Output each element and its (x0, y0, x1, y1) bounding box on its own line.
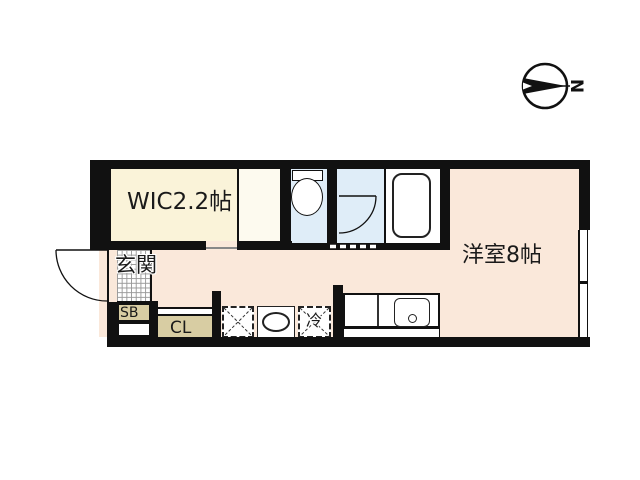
wall-wic-bottom-left (90, 241, 206, 250)
wall-bath-right (440, 160, 450, 250)
entrance-tile-bottom-line (117, 301, 151, 303)
window-line-outer (587, 230, 589, 337)
wic-opening-threshold (206, 247, 237, 249)
window-line-inner (578, 230, 580, 337)
wall-toilet-right (327, 169, 337, 243)
wall-sb-cl-divider (151, 301, 158, 337)
wic-label: WIC2.2帖 (127, 191, 232, 214)
washing-machine-space (222, 306, 254, 338)
window-glass (578, 230, 590, 337)
wall-stub-kitchen-left (333, 285, 343, 337)
wic-divider-line (237, 169, 239, 241)
closet-door-track (158, 307, 212, 316)
wall-right-upper (579, 160, 590, 230)
compass-circle (523, 64, 567, 108)
entrance-door-frame-line (107, 250, 109, 302)
kitchen-sink-drain (408, 314, 417, 323)
entrance-label: 玄関 (115, 255, 157, 276)
wic-closet-floor (239, 169, 280, 241)
bath-divider-line (384, 169, 386, 243)
shower-room-floor (337, 169, 384, 243)
bathtub (392, 173, 431, 238)
shoe-box-lower-cabinet (117, 322, 151, 337)
floor-plan: N WIC2.2帖 洋室8帖 玄関 SB CL 冷 (0, 0, 640, 480)
wall-left-upper (90, 160, 111, 250)
wall-wet-bottom (280, 243, 450, 250)
refrigerator-label: 冷 (306, 313, 322, 329)
kitchen-counter-divider (377, 295, 379, 326)
window-center-tick (578, 281, 588, 284)
compass-needle-icon (523, 78, 566, 94)
wall-stub-closet-right (212, 291, 221, 337)
compass: N (523, 64, 586, 108)
main-room-label: 洋室8帖 (462, 245, 542, 267)
shoe-box-label: SB (120, 306, 139, 320)
wall-bottom (107, 337, 590, 347)
toilet-bowl (291, 178, 323, 216)
washing-machine-pan-drain (262, 312, 290, 332)
closet-label: CL (170, 320, 191, 337)
wall-top (90, 160, 590, 169)
wall-toilet-left (280, 169, 291, 243)
compass-north-label: N (566, 79, 586, 93)
